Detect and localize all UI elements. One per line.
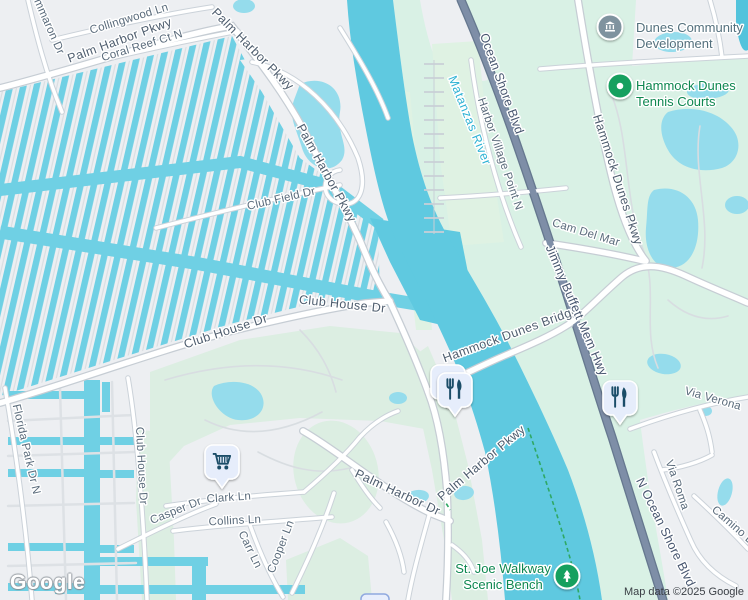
clipped-marker-bottom[interactable] [361,594,389,600]
google-logo[interactable]: Google [10,571,85,595]
map-attribution[interactable]: Map data ©2025 Google [624,586,744,598]
civic-marker-dunes-community[interactable] [598,15,623,40]
dot-icon [617,83,624,90]
park-marker-scenic-bench[interactable] [555,564,580,589]
poi-label-st-joe-walkway-scenic-bench[interactable]: St. Joe WalkwayScenic Bench [455,561,551,592]
park-marker-tennis-courts[interactable] [608,74,633,99]
map-viewport[interactable]: mmaron DrCollingwood LnPalm Harbor PkwyC… [0,0,748,600]
map-canvas[interactable]: mmaron DrCollingwood LnPalm Harbor PkwyC… [0,0,748,600]
